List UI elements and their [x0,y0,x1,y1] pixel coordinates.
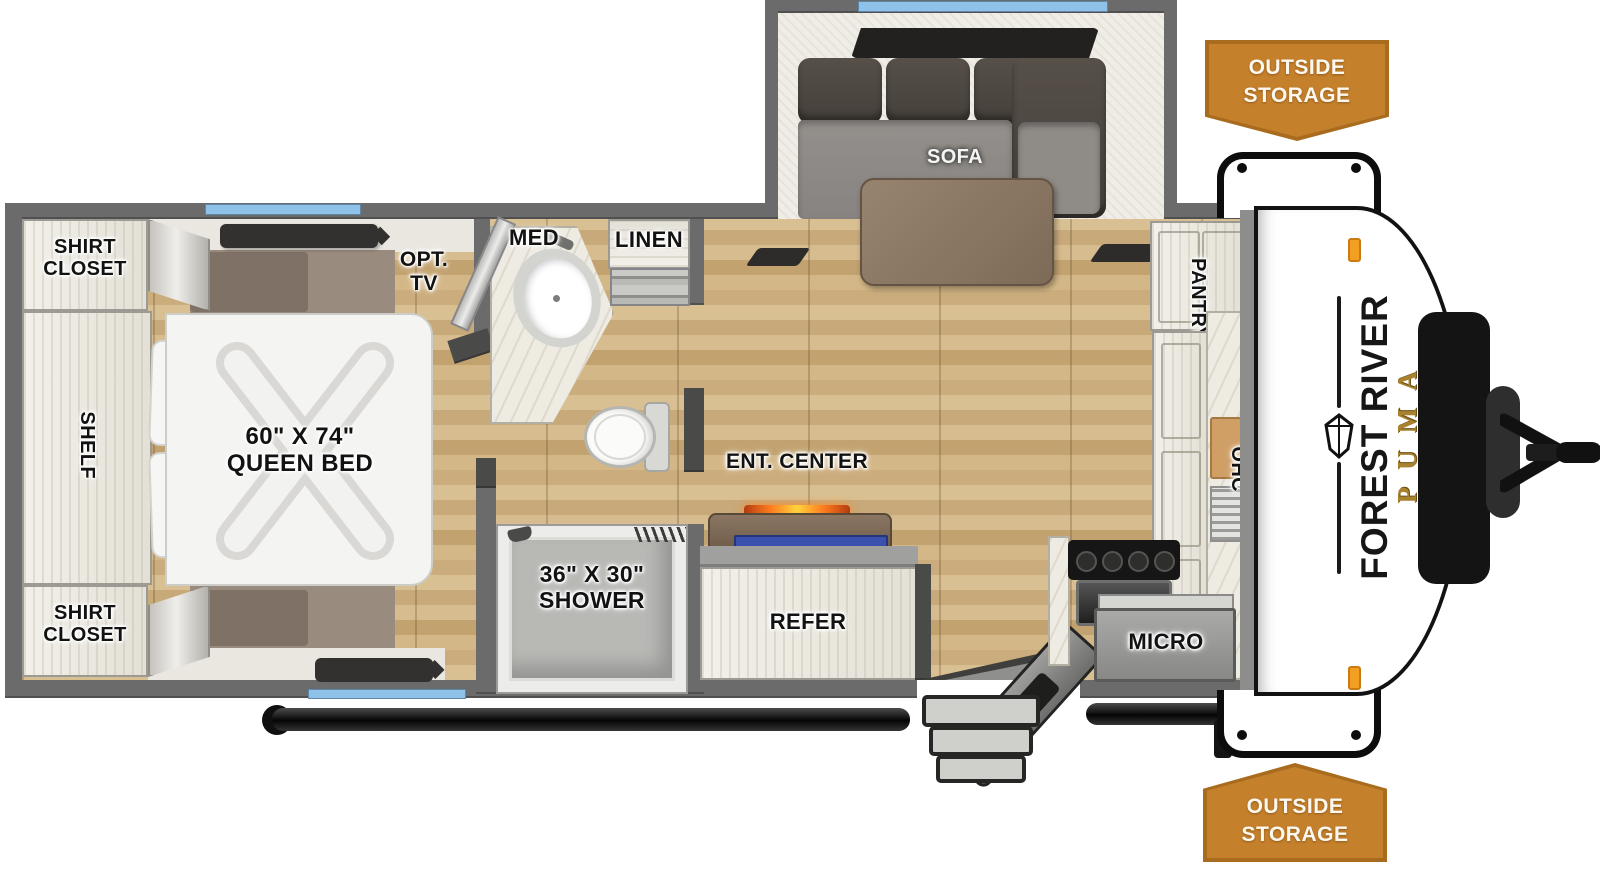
med-label: MED [492,226,576,251]
outside-storage-badge-bottom: OUTSIDE STORAGE [1203,763,1387,862]
wall-shower-left [476,458,496,694]
awning-tube-left [272,708,910,731]
outside-storage-bottom-text: OUTSIDE STORAGE [1203,793,1387,850]
step-2 [929,726,1033,756]
outside-storage-badge-top: OUTSIDE STORAGE [1205,40,1389,141]
badge-line1: OUTSIDE [1247,795,1344,818]
burner [1102,551,1123,572]
linen-drawers [610,268,690,306]
cabinet-door [1161,343,1201,439]
dinette-table [860,178,1054,286]
hatch-latch [1237,163,1247,173]
hatch-latch [1351,163,1361,173]
linen-label: LINEN [604,228,694,253]
shower-label: 36" X 30" SHOWER [500,562,684,614]
badge-line1: OUTSIDE [1249,56,1346,79]
micro-label: MICRO [1114,630,1218,655]
queen-bed-label: 60" X 74" QUEEN BED [200,424,400,478]
cabinet-door [1161,451,1201,547]
hitch-a-frame [1500,412,1600,494]
burner [1128,551,1149,572]
opt-tv-line1: OPT. [400,248,448,271]
ent-center-counter [700,546,918,567]
sofa-label: SOFA [900,146,1010,168]
brand-flourish-lower [1337,462,1341,574]
wall-refer-right [915,564,931,680]
outside-storage-top-text: OUTSIDE STORAGE [1205,54,1389,111]
hatch-latch [1351,730,1361,740]
marker-light-bottom [1348,666,1361,690]
shirt-closet-bottom-line2: CLOSET [43,624,127,646]
wall-toilet-right [684,388,704,472]
bedroom-tv-bottom [315,658,433,682]
refer-label: REFER [758,610,858,635]
bed-name: QUEEN BED [227,450,373,477]
shelf-label: SHELF [76,390,98,500]
wall-shower-left-cap [476,458,496,488]
slide-window [858,1,1108,12]
shirt-closet-top-line1: SHIRT [54,236,116,258]
opt-tv-line2: TV [410,272,438,295]
shirt-closet-top-label: SHIRT CLOSET [30,236,140,281]
door-side-window [308,689,466,699]
badge-line2: STORAGE [1244,84,1351,107]
step-3 [936,755,1026,783]
wall-rear [5,203,22,698]
rock-guard [1418,312,1490,584]
sofa-back-cushion [798,58,882,124]
shower-curtain-hooks [634,527,686,542]
entry-steps [922,695,1042,787]
hatch-latch [1237,730,1247,740]
marker-light-top [1348,238,1361,262]
shirt-closet-bottom-label: SHIRT CLOSET [30,602,140,647]
opt-tv-label: OPT. TV [385,248,463,295]
bedroom-tv-top [220,224,378,248]
step-1 [922,695,1040,727]
sofa-back-cushion [886,58,970,124]
floorplan-scene: SOFA SHIRT CLOSET SHELF SHIRT CLOSET [0,0,1600,869]
stove-cooktop [1068,540,1180,580]
toilet-seat-line [594,414,646,460]
ent-center-label: ENT. CENTER [722,450,872,474]
slide-wall-left [765,0,778,219]
wall-top-left [5,203,767,219]
badge-line2: STORAGE [1242,823,1349,846]
shirt-closet-bottom-line1: SHIRT [54,602,116,624]
shirt-closet-top-line2: CLOSET [43,258,127,280]
sink-drain [553,295,560,302]
burner [1076,551,1097,572]
bed-size: 60" X 74" [245,423,354,450]
stove-counter-end [1048,536,1070,666]
shower-name: SHOWER [539,587,645,613]
tv-soundbar [851,28,1099,58]
shower-size: 36" X 30" [540,561,645,587]
burner [1154,551,1175,572]
slide-wall-right [1164,0,1177,219]
brand-flourish-upper [1337,296,1341,408]
storage-hatch-bottom [1217,690,1381,758]
bedroom-window [205,204,361,215]
forest-river-emblem [1322,413,1356,459]
